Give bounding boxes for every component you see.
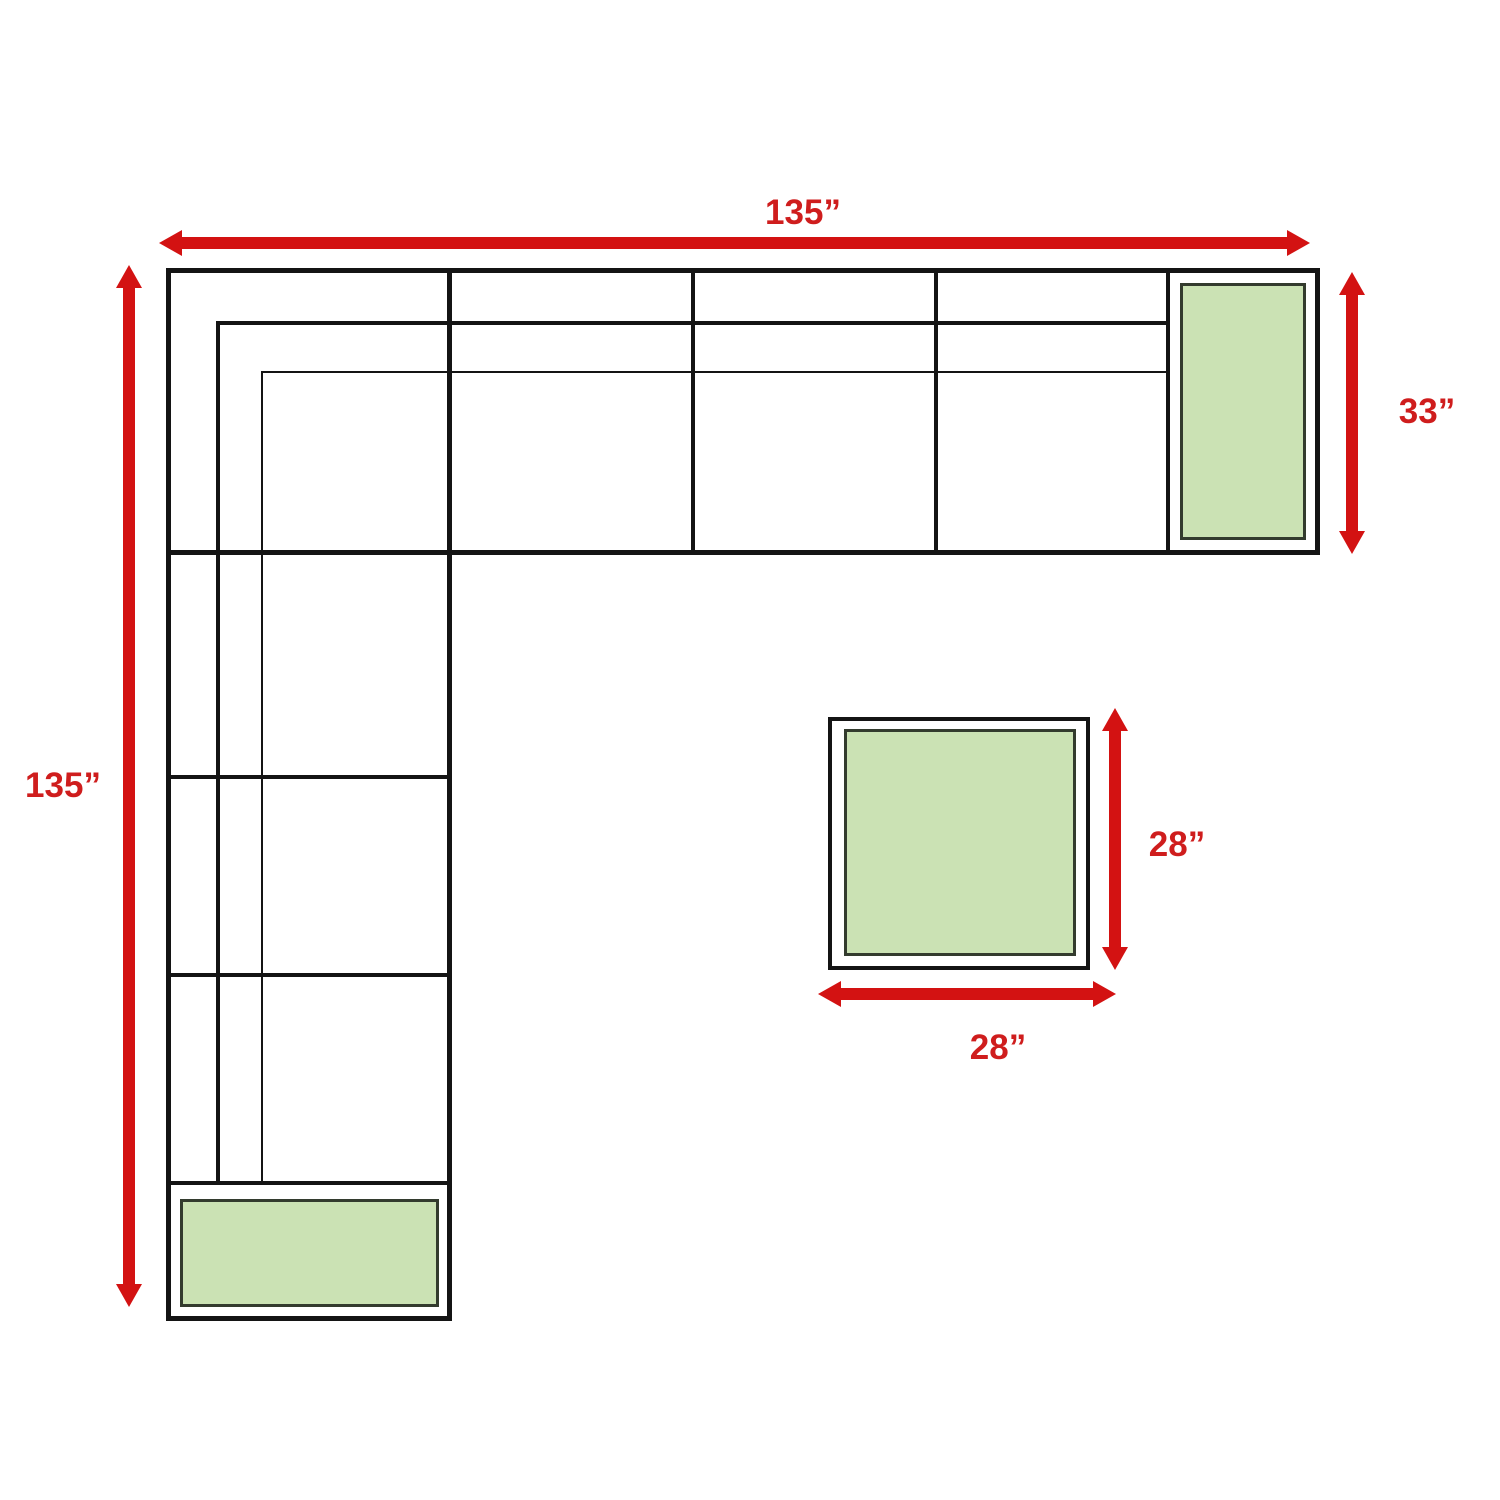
sectional-sofa-dimension-diagram: 135” 135” 33” 28” 28” xyxy=(0,0,1500,1500)
arrow-head-down-icon xyxy=(116,1284,142,1307)
right-end-table-top xyxy=(1180,283,1306,540)
seat-divider-leg-1 xyxy=(166,775,452,779)
seat-divider-leg-2 xyxy=(166,973,452,977)
arrow-head-down-icon xyxy=(1339,531,1365,554)
ottoman-width-arrow xyxy=(818,981,1116,1007)
sofa-height-arrow xyxy=(116,265,142,1307)
sofa-height-label: 135” xyxy=(25,766,101,806)
sofa-width-arrow xyxy=(159,230,1310,256)
arrow-head-down-icon xyxy=(1102,947,1128,970)
backrest-inner-line-horizontal xyxy=(261,371,1168,373)
backrest-inner-line-vertical xyxy=(261,371,263,1183)
ottoman-height-label: 28” xyxy=(1149,825,1205,865)
arrow-head-right-icon xyxy=(1287,230,1310,256)
seat-divider-top-2 xyxy=(934,268,938,555)
backrest-outer-line-horizontal xyxy=(216,321,1168,325)
backrest-outer-line-vertical xyxy=(216,321,220,1183)
sofa-left-leg-outline xyxy=(166,268,452,1321)
corner-section-depth-label: 33” xyxy=(1399,392,1455,432)
seat-divider-top-3 xyxy=(1166,268,1170,555)
corner-section-depth-arrow xyxy=(1339,272,1365,554)
arrow-head-right-icon xyxy=(1093,981,1116,1007)
seat-divider-leg-3 xyxy=(166,1181,452,1185)
bottom-end-table-top xyxy=(180,1199,439,1307)
sofa-width-label: 135” xyxy=(765,193,841,233)
ottoman-width-label: 28” xyxy=(970,1028,1026,1068)
ottoman-top xyxy=(844,729,1076,956)
seat-divider-top-1 xyxy=(691,268,695,555)
ottoman-height-arrow xyxy=(1102,708,1128,970)
